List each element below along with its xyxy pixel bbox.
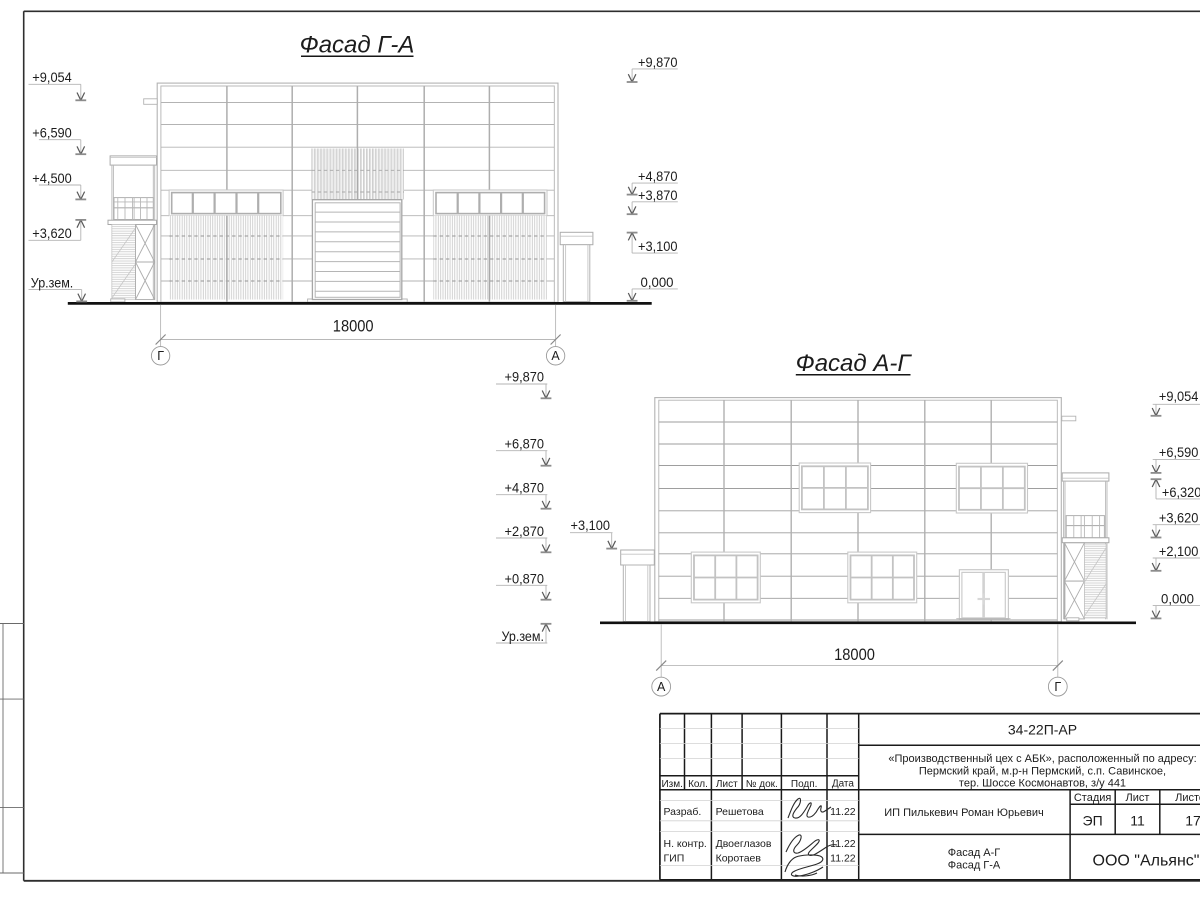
svg-text:Фасад А-Г: Фасад А-Г — [948, 847, 1001, 859]
svg-text:+9,870: +9,870 — [638, 54, 678, 70]
svg-text:Пермский край, м.р-н Пермский,: Пермский край, м.р-н Пермский, с.п. Сави… — [919, 765, 1166, 777]
svg-text:ГИП: ГИП — [664, 852, 685, 864]
svg-text:+6,320: +6,320 — [1162, 484, 1200, 500]
svg-text:Ур.зем.: Ур.зем. — [502, 628, 545, 644]
svg-text:+3,620: +3,620 — [32, 225, 72, 241]
svg-text:ЭП: ЭП — [1083, 813, 1103, 829]
svg-text:Лист: Лист — [716, 779, 738, 790]
svg-text:Разраб.: Разраб. — [664, 806, 702, 818]
svg-text:Изм.: Изм. — [661, 779, 682, 790]
svg-text:ООО "Альянс": ООО "Альянс" — [1093, 853, 1200, 870]
svg-text:0,000: 0,000 — [641, 274, 674, 290]
svg-text:Листов: Листов — [1175, 792, 1200, 804]
svg-text:11: 11 — [1130, 813, 1145, 829]
svg-text:+2,870: +2,870 — [505, 523, 545, 539]
svg-text:11.22: 11.22 — [830, 838, 856, 850]
svg-text:№ док.: № док. — [746, 779, 778, 790]
svg-text:тер. Шоссе Космонавтов, з/у 44: тер. Шоссе Космонавтов, з/у 441 — [959, 778, 1126, 790]
svg-text:Фасад Г-А: Фасад Г-А — [300, 32, 415, 59]
svg-text:Лист: Лист — [1126, 792, 1150, 804]
svg-text:Подп.: Подп. — [791, 779, 818, 790]
svg-text:Фасад А-Г: Фасад А-Г — [796, 350, 913, 377]
svg-text:+6,590: +6,590 — [1159, 444, 1199, 460]
svg-text:+9,870: +9,870 — [505, 369, 545, 385]
svg-text:Коротаев: Коротаев — [716, 852, 762, 864]
svg-text:Стадия: Стадия — [1074, 792, 1112, 804]
svg-text:А: А — [657, 680, 666, 694]
svg-text:18000: 18000 — [333, 317, 374, 335]
svg-text:+6,870: +6,870 — [505, 436, 545, 452]
svg-text:+0,870: +0,870 — [505, 570, 545, 586]
svg-text:«Производственный цех с АБК»,: «Производственный цех с АБК», расположен… — [888, 753, 1196, 765]
svg-text:+4,870: +4,870 — [505, 480, 545, 496]
svg-text:+9,054: +9,054 — [1159, 388, 1199, 404]
svg-text:Г: Г — [1054, 680, 1061, 694]
svg-text:Фасад Г-А: Фасад Г-А — [948, 860, 1001, 872]
svg-text:+9,054: +9,054 — [32, 69, 72, 85]
svg-text:Двоеглазов: Двоеглазов — [716, 838, 772, 850]
svg-text:Дата: Дата — [832, 778, 855, 789]
svg-text:+3,870: +3,870 — [638, 187, 678, 203]
svg-text:+6,590: +6,590 — [32, 125, 72, 141]
svg-text:Г: Г — [157, 349, 164, 363]
svg-text:18000: 18000 — [834, 646, 875, 664]
svg-text:+2,100: +2,100 — [1159, 543, 1199, 559]
svg-text:ИП Пилькевич Роман Юрьевич: ИП Пилькевич Роман Юрьевич — [884, 807, 1043, 819]
svg-text:11.22: 11.22 — [830, 852, 856, 864]
svg-text:34-22П-АР: 34-22П-АР — [1008, 722, 1077, 738]
svg-text:+4,870: +4,870 — [638, 168, 678, 184]
svg-text:Решетова: Решетова — [716, 806, 764, 818]
svg-text:+3,100: +3,100 — [571, 517, 611, 533]
svg-text:А: А — [551, 349, 560, 363]
svg-text:+4,500: +4,500 — [32, 170, 72, 186]
svg-text:17: 17 — [1185, 813, 1200, 829]
svg-text:Ур.зем.: Ур.зем. — [31, 274, 74, 290]
svg-text:0,000: 0,000 — [1161, 590, 1194, 606]
svg-text:+3,620: +3,620 — [1159, 510, 1199, 526]
svg-text:+3,100: +3,100 — [638, 238, 678, 254]
svg-text:Кол.: Кол. — [688, 779, 708, 790]
svg-text:11.22: 11.22 — [830, 806, 856, 818]
svg-text:Н. контр.: Н. контр. — [664, 838, 707, 850]
